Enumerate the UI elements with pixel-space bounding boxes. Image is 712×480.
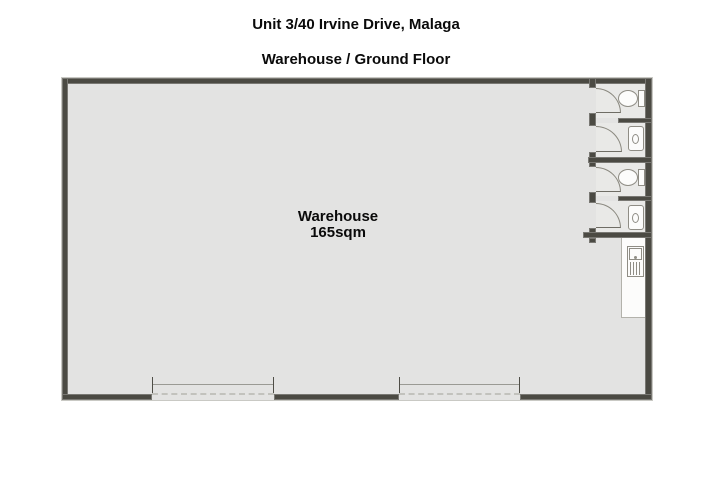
- bathroom-left-wall-segment: [589, 192, 596, 203]
- wc2-basin2-partition-wall: [618, 196, 652, 201]
- floor-plan-page: Unit 3/40 Irvine Drive, Malaga Warehouse…: [0, 0, 712, 480]
- toilet-bowl: [618, 169, 638, 186]
- roller-door-lintel: [400, 384, 519, 385]
- toilet-icon: [618, 167, 645, 188]
- toilet-bowl: [618, 90, 638, 107]
- sink-drainer-lines: [630, 262, 642, 275]
- room-area: 165sqm: [218, 225, 458, 241]
- roller-door-track: [152, 393, 274, 395]
- unit-separator-wall: [588, 157, 652, 163]
- toilet-cistern: [638, 169, 645, 186]
- roller-door-icon: [152, 377, 274, 400]
- wall-right: [645, 78, 652, 400]
- page-title: Unit 3/40 Irvine Drive, Malaga: [0, 16, 712, 33]
- roller-door-icon: [399, 377, 520, 400]
- floor-plan: Warehouse 165sqm: [62, 78, 652, 400]
- basin-bowl: [632, 134, 639, 144]
- wc1-basin1-partition-wall: [618, 118, 652, 123]
- sink-tap: [634, 256, 637, 259]
- bathroom-left-wall-segment: [589, 78, 596, 88]
- basin-bowl: [632, 213, 639, 223]
- roller-door-jamb: [399, 377, 400, 394]
- bathroom-bottom-wall-stub: [589, 238, 596, 243]
- roller-door-track: [399, 393, 520, 395]
- wall-top: [62, 78, 652, 84]
- warehouse-room-label: Warehouse 165sqm: [218, 209, 458, 241]
- basin-icon: [628, 126, 644, 151]
- wall-bottom-right-segment: [520, 394, 652, 400]
- page-subtitle: Warehouse / Ground Floor: [0, 51, 712, 68]
- roller-door-jamb: [152, 377, 153, 394]
- wall-bottom-middle-segment: [274, 394, 399, 400]
- bathroom-left-wall-segment: [589, 113, 596, 126]
- wall-left: [62, 78, 68, 400]
- roller-door-jamb: [273, 377, 274, 394]
- wall-bottom-left-segment: [62, 394, 152, 400]
- roller-door-lintel: [153, 384, 273, 385]
- roller-door-jamb: [519, 377, 520, 394]
- basin-icon: [628, 205, 644, 230]
- room-name: Warehouse: [218, 209, 458, 225]
- toilet-icon: [618, 88, 645, 109]
- sink-niche: [621, 238, 645, 318]
- sink-icon: [627, 246, 644, 277]
- toilet-cistern: [638, 90, 645, 107]
